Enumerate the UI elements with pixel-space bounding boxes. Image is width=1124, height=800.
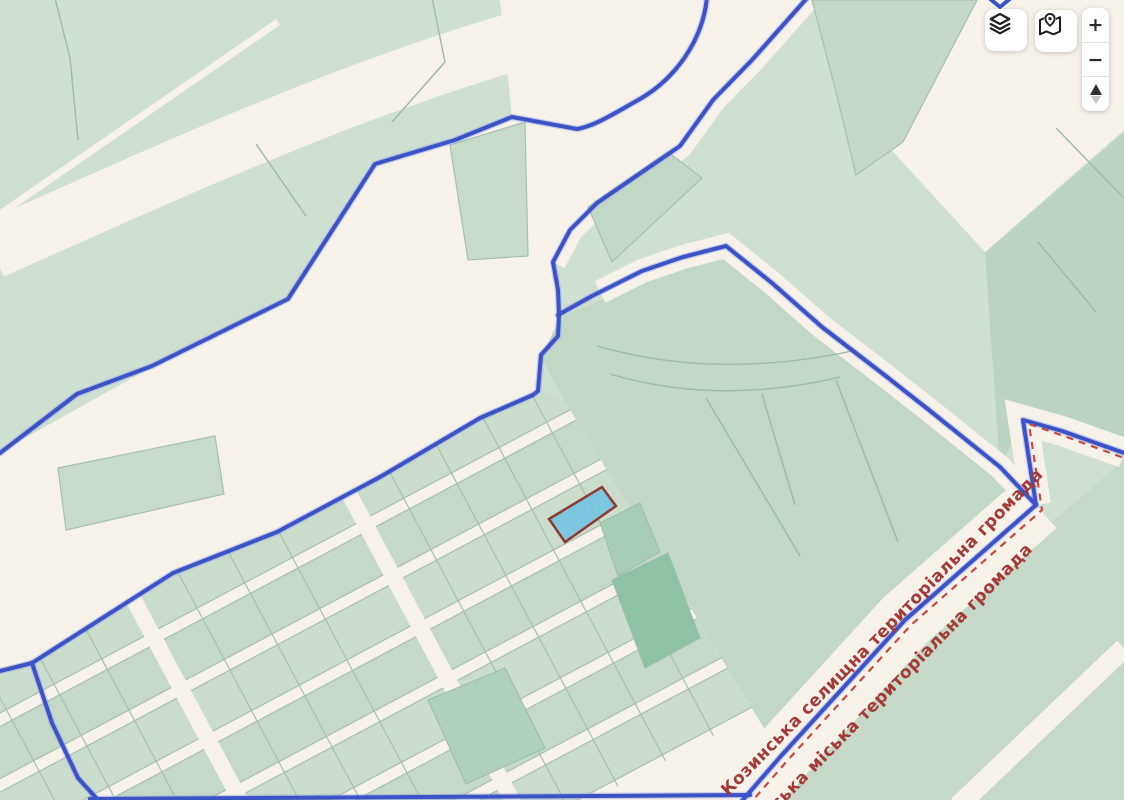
map-viewport[interactable]: Козинська селищна територіальна громада … — [0, 0, 1124, 800]
map-pin-icon — [1035, 10, 1065, 40]
layers-button[interactable] — [985, 9, 1027, 51]
compass-button[interactable] — [1082, 76, 1109, 111]
layers-icon — [985, 9, 1015, 39]
map-pin-button[interactable] — [1035, 10, 1077, 52]
zoom-in-button[interactable]: + — [1082, 8, 1109, 42]
map-canvas[interactable]: Козинська селищна територіальна громада … — [0, 0, 1124, 800]
zoom-control: + − — [1082, 8, 1109, 111]
compass-needle-icon — [1090, 84, 1102, 104]
zoom-out-button[interactable]: − — [1082, 42, 1109, 77]
